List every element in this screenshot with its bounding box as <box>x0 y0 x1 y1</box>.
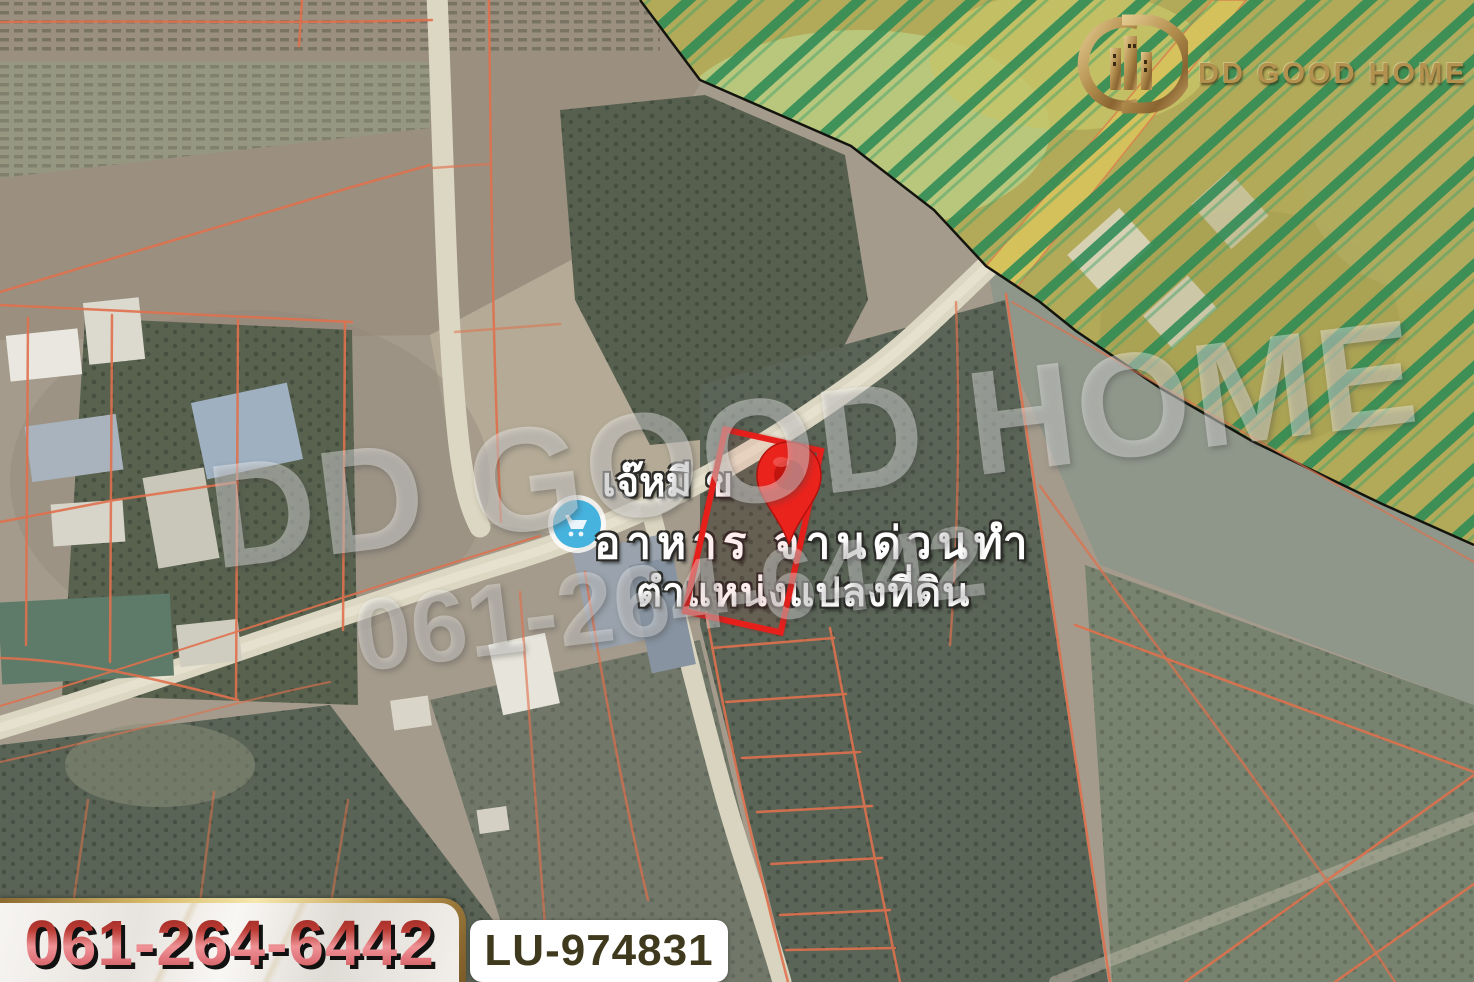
listing-image: เจ๊หมี ข อาหาร จานด่วนทำ ตำแหน่งแปลงที่ด… <box>0 0 1474 982</box>
listing-id-badge: LU-974831 <box>470 920 728 982</box>
phone-banner: 061-264-6442 <box>0 898 466 982</box>
brand-logo: DD GOOD HOME <box>1062 10 1468 116</box>
phone-number: 061-264-6442 <box>24 906 435 980</box>
logo-text: DD GOOD HOME <box>1198 58 1468 91</box>
logo-emblem-icon <box>1062 10 1188 116</box>
listing-id: LU-974831 <box>484 926 713 976</box>
phone-banner-inner: 061-264-6442 <box>0 903 459 982</box>
